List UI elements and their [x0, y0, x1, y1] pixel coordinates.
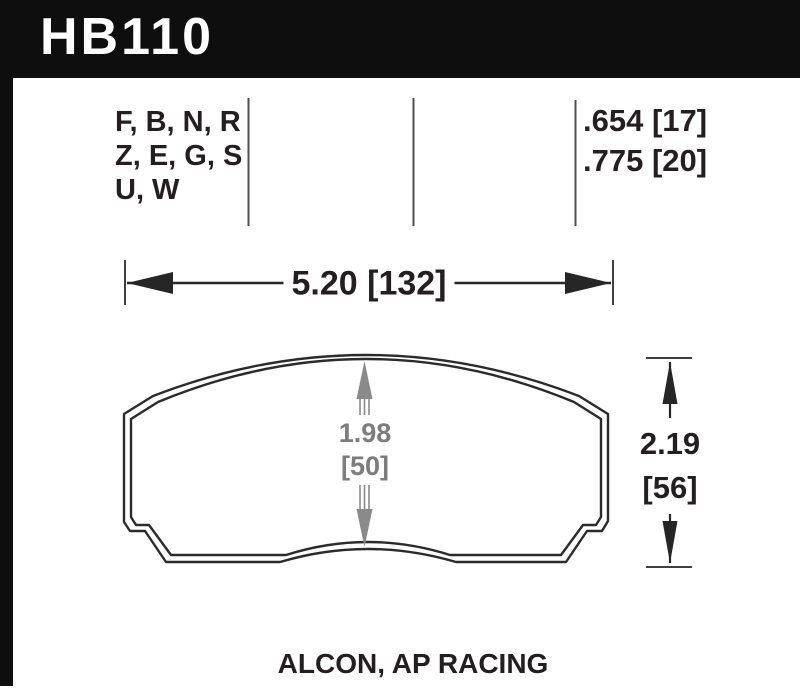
- width-dimension-label: 5.20 [132]: [284, 265, 455, 304]
- caliper-applications-label: ALCON, AP RACING: [278, 648, 549, 680]
- height-inches: 2.19: [640, 422, 700, 466]
- up-arrowhead-icon: [357, 361, 373, 399]
- spec-table-dividers: [249, 98, 576, 226]
- height-millimeters: [56]: [640, 466, 700, 510]
- up-arrowhead-icon: [663, 362, 678, 404]
- technical-drawing: [0, 0, 800, 691]
- left-arrowhead-icon: [127, 272, 173, 294]
- depth-millimeters: [50]: [339, 450, 392, 483]
- right-arrowhead-icon: [565, 272, 611, 294]
- height-dimension-label: 2.19 [56]: [638, 418, 702, 514]
- depth-dimension-label: 1.98 [50]: [333, 415, 398, 485]
- brake-pad-spec-sheet: HB110 F, B, N, R Z, E, G, S U, W .654 [1…: [0, 0, 800, 691]
- down-arrowhead-icon: [663, 521, 678, 563]
- depth-inches: 1.98: [339, 417, 392, 450]
